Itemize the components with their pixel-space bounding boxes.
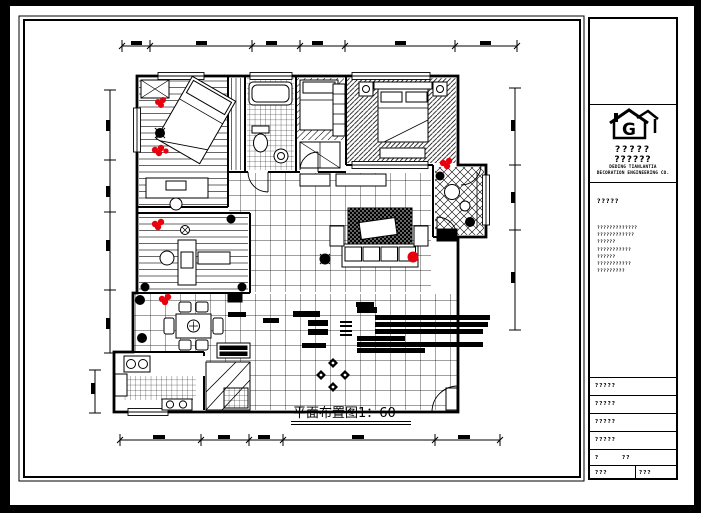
side-table-icon bbox=[330, 226, 344, 246]
project-line: ????????????? bbox=[597, 225, 670, 232]
shoe-cabinet-icon bbox=[446, 388, 457, 410]
project-line: ?????? bbox=[597, 239, 670, 246]
plant-icon bbox=[155, 128, 165, 138]
closet-icon bbox=[333, 84, 345, 136]
sideboard-icon bbox=[336, 174, 386, 186]
title-block: G ????? ?????? DEDING TIANLANTIA DECORAT… bbox=[588, 17, 678, 480]
info-row-4: ????? bbox=[590, 431, 676, 449]
info-row-2: ????? bbox=[590, 395, 676, 413]
house-g-logo-icon: G bbox=[607, 107, 659, 141]
plant-icon bbox=[135, 295, 145, 305]
info-row-3: ????? bbox=[590, 413, 676, 431]
fridge-icon bbox=[115, 374, 127, 396]
project-label: ????? bbox=[597, 198, 670, 205]
info-row-label: ????? bbox=[595, 437, 616, 443]
ceiling-light-icon bbox=[181, 226, 190, 235]
kitchen-sink-icon bbox=[124, 356, 150, 372]
side-table-icon bbox=[414, 226, 428, 246]
wardrobe-strip bbox=[229, 78, 244, 170]
bathtub-icon bbox=[249, 82, 292, 105]
hall-shelf-icon bbox=[437, 229, 457, 241]
info-row-1: ????? bbox=[590, 377, 676, 395]
lamp-icon bbox=[437, 86, 444, 93]
cabinet-icon bbox=[228, 294, 242, 302]
scale-row: ? ?? bbox=[590, 449, 676, 465]
room-kitchen-floor bbox=[122, 376, 196, 400]
bed-icon bbox=[374, 82, 432, 142]
plant-icon bbox=[465, 217, 475, 227]
dresser-icon bbox=[380, 148, 425, 158]
window bbox=[483, 175, 490, 225]
project-line: ???????????? bbox=[597, 232, 670, 239]
project-line: ?????? bbox=[597, 254, 670, 261]
cad-drawing-viewport: 平面布置图1：60 G ????? ?????? DEDING TIANLANT… bbox=[0, 0, 701, 513]
project-line: ??????????? bbox=[597, 261, 670, 268]
info-row-label: ????? bbox=[595, 383, 616, 389]
window bbox=[352, 73, 430, 80]
plant-icon bbox=[436, 172, 445, 181]
lamp-icon bbox=[363, 86, 370, 93]
toilet-icon bbox=[252, 126, 269, 152]
scale-label: ? bbox=[595, 455, 599, 461]
info-row-label: ????? bbox=[595, 401, 616, 407]
project-line: ????????? bbox=[597, 268, 670, 275]
sink-icon bbox=[274, 149, 288, 163]
sofa-icon bbox=[342, 244, 418, 267]
plant-icon bbox=[141, 283, 150, 292]
company-logo-cell: G ????? ?????? DEDING TIANLANTIA DECORAT… bbox=[590, 104, 676, 182]
project-line: ??????????? bbox=[597, 247, 670, 254]
caption-group: 平面布置图1：60 bbox=[291, 406, 411, 425]
divider bbox=[635, 466, 636, 478]
company-name-line2: DECORATION ENGINEERING CO. bbox=[590, 171, 676, 177]
window bbox=[134, 108, 141, 152]
plant-icon bbox=[320, 254, 331, 265]
sideboard-icon bbox=[300, 174, 330, 186]
plant-icon bbox=[137, 333, 147, 343]
logo-text-2: ?????? bbox=[590, 155, 676, 165]
window bbox=[158, 73, 204, 80]
entry-cabinet-icon bbox=[217, 343, 250, 358]
bookshelf-icon bbox=[198, 252, 230, 264]
footer-right-label: ??? bbox=[639, 470, 652, 476]
logo-text-1: ????? bbox=[590, 145, 676, 155]
stove-icon bbox=[162, 399, 192, 410]
window bbox=[250, 73, 292, 80]
footer-row: ??? ??? bbox=[590, 465, 676, 478]
project-info-cell: ????? ????????????? ???????????? ?????? … bbox=[590, 182, 676, 377]
project-lines: ????????????? ???????????? ?????? ??????… bbox=[597, 225, 670, 275]
hatched-shaft bbox=[206, 362, 250, 410]
footer-left-label: ??? bbox=[595, 470, 608, 476]
svg-text:G: G bbox=[622, 120, 636, 140]
red-accent-dot bbox=[408, 252, 419, 263]
bed-icon bbox=[300, 80, 338, 130]
info-row-label: ????? bbox=[595, 419, 616, 425]
drawing-caption: 平面布置图1：60 bbox=[293, 406, 396, 421]
dining-table-icon bbox=[176, 314, 211, 338]
plant-icon bbox=[227, 215, 236, 224]
window bbox=[352, 162, 428, 169]
scale-value: ?? bbox=[622, 455, 630, 461]
plant-icon bbox=[238, 283, 247, 292]
